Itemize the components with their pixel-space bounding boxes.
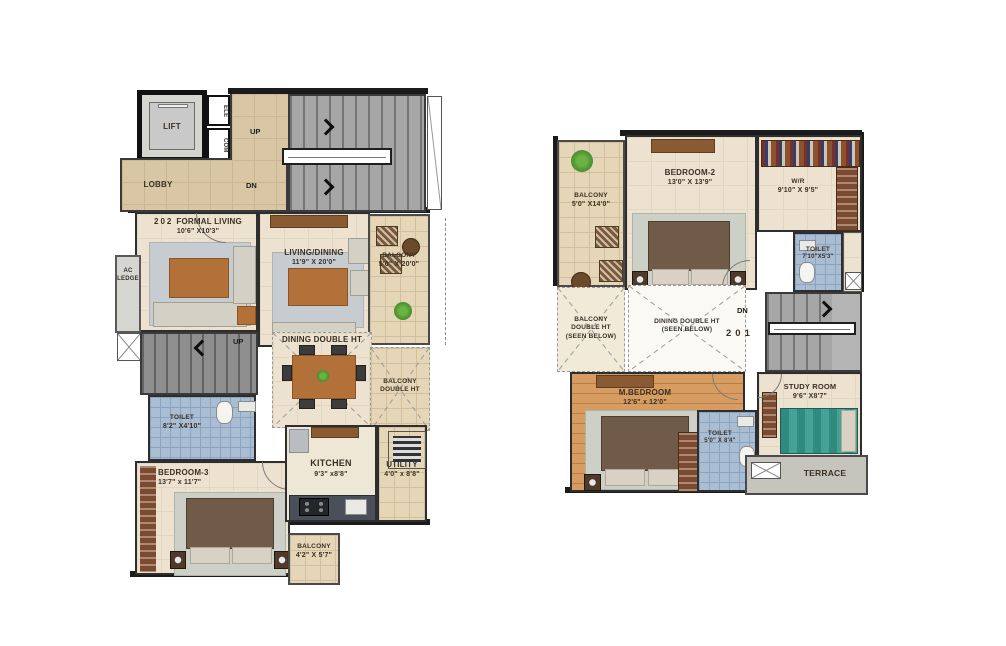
bedroom-2-bed bbox=[648, 221, 730, 271]
balcony-201-plant bbox=[571, 150, 593, 172]
shaft-ele: ELE bbox=[207, 95, 230, 126]
balcony-side-label: BALCONY 5'0" X 20'0" bbox=[368, 252, 430, 270]
dining-chair-5 bbox=[282, 365, 292, 381]
bedroom-2-label: BEDROOM-2 13'0" X 13'9" bbox=[640, 168, 740, 187]
shaft-com: COM bbox=[207, 128, 230, 161]
dining-chair-3 bbox=[299, 399, 315, 409]
balcony-201-label: BALCONY 5'0" X14'0" bbox=[557, 192, 625, 210]
toilet-201-bottom-sink bbox=[737, 416, 754, 427]
lift-label: LIFT bbox=[142, 122, 202, 132]
kitchen-stove bbox=[299, 498, 329, 516]
toilet-201-bottom-label: TOILET 5'0" X 8'4" bbox=[698, 430, 742, 446]
bedroom-3-pillow-2 bbox=[232, 547, 272, 564]
living-dining-dims: 11'9" X 20'0" bbox=[262, 258, 366, 267]
kitchen-dims: 9'3" x8'8" bbox=[287, 470, 375, 479]
study-room-name: STUDY ROOM bbox=[765, 382, 855, 392]
toilet-201-hatch bbox=[845, 272, 862, 290]
inner-stairs-up-label: UP bbox=[233, 337, 243, 346]
kitchen-label: KITCHEN 9'3" x8'8" bbox=[287, 458, 375, 479]
m-bedroom-nightstand-1 bbox=[584, 474, 601, 491]
formal-living-side-sofa bbox=[233, 246, 256, 304]
balcony-double-ht-201-label: BALCONY DOUBLE HT (SEEN BELOW) bbox=[557, 316, 625, 341]
bedroom-3-label: BEDROOM-3 13'7" x 11'7" bbox=[158, 468, 258, 487]
balcony-201-chair-1 bbox=[595, 226, 619, 248]
bedroom-2-name: BEDROOM-2 bbox=[640, 168, 740, 178]
bedroom-3-wardrobe bbox=[140, 466, 156, 572]
bedroom-3-dims: 13'7" x 11'7" bbox=[158, 478, 258, 487]
toilet-202-label: TOILET 8'2" X4'10" bbox=[150, 414, 214, 432]
formal-living-side-table bbox=[237, 306, 256, 325]
balcony-rear-dims: 4'2" X 5'7" bbox=[288, 551, 340, 560]
bedroom-2-dims: 13'0" X 13'9" bbox=[640, 178, 740, 187]
study-room-dims: 9'6" X8'7" bbox=[765, 392, 855, 401]
unit-202-number: 202 bbox=[154, 217, 173, 226]
kitchen-upper-counter bbox=[311, 427, 359, 438]
toilet-201-top-dims: 7'10"X5'3" bbox=[795, 254, 841, 262]
balcony-double-ht-line2: DOUBLE HT bbox=[370, 386, 430, 394]
dining-table-plant bbox=[317, 370, 329, 382]
dining-chair-6 bbox=[356, 365, 366, 381]
bedroom-3-name: BEDROOM-3 bbox=[158, 468, 258, 478]
wr-wardrobe-right bbox=[836, 167, 858, 231]
balcony-side bbox=[368, 214, 430, 345]
formal-living-text: FORMAL LIVING bbox=[176, 217, 242, 226]
toilet-201-top-wc bbox=[799, 262, 815, 283]
bedroom-2-pillow-1 bbox=[652, 269, 689, 285]
balcony-201-name: BALCONY bbox=[557, 192, 625, 200]
balcony-plant bbox=[394, 302, 412, 320]
toilet-202-name: TOILET bbox=[150, 414, 214, 422]
dining-dh-201-line1: DINING DOUBLE HT bbox=[630, 318, 744, 326]
utility-name: UTILITY bbox=[377, 460, 427, 470]
balcony-double-ht-label: BALCONY DOUBLE HT bbox=[370, 378, 430, 395]
stair-rail-line bbox=[288, 157, 386, 158]
balcony-side-dims: 5'0" X 20'0" bbox=[368, 260, 430, 269]
balcony-201-dims: 5'0" X14'0" bbox=[557, 200, 625, 209]
living-dining bbox=[258, 212, 370, 347]
toilet-201-bottom-dims: 5'0" X 8'4" bbox=[698, 438, 742, 446]
dining-chair-2 bbox=[331, 345, 347, 355]
formal-living-coffee-table bbox=[169, 258, 229, 298]
bedroom-3-pillow-1 bbox=[190, 547, 230, 564]
living-dining-label: LIVING/DINING 11'9" X 20'0" bbox=[262, 248, 366, 267]
toilet-202-wc bbox=[216, 401, 233, 424]
dining-chair-4 bbox=[331, 399, 347, 409]
wr-wardrobe-top bbox=[761, 140, 860, 167]
open-edge-dashed bbox=[445, 218, 446, 345]
balcony-double-ht-line1: BALCONY bbox=[370, 378, 430, 386]
balcony-201-chair-2 bbox=[599, 260, 623, 282]
wr-name: W/R bbox=[762, 178, 834, 186]
bedroom-3-nightstand-1 bbox=[170, 551, 186, 569]
balcony-rear-name: BALCONY bbox=[288, 543, 340, 551]
stairs-201-dn-label: DN bbox=[737, 306, 748, 315]
ac-ledge-line2: LEDGE bbox=[115, 276, 141, 284]
balcony-dh-201-line1: BALCONY bbox=[557, 316, 625, 324]
toilet-202-sink bbox=[238, 401, 256, 412]
terrace-label: TERRACE bbox=[790, 468, 860, 479]
m-bedroom-pillow-1 bbox=[605, 469, 645, 486]
terrace-hatch bbox=[751, 462, 781, 479]
living-dining-name: LIVING/DINING bbox=[262, 248, 366, 258]
formal-living-sofa bbox=[153, 302, 247, 327]
m-bedroom-dresser bbox=[596, 375, 654, 388]
m-bedroom-bed bbox=[601, 416, 689, 471]
unit-201-number: 201 bbox=[726, 328, 754, 339]
study-daybed-pillow bbox=[841, 410, 856, 452]
dining-double-ht-label: DINING DOUBLE HT bbox=[274, 335, 370, 345]
balcony-dh-201-line2: DOUBLE HT bbox=[557, 324, 625, 332]
living-dining-console bbox=[270, 215, 348, 228]
stair-rail-202 bbox=[282, 148, 392, 165]
ac-ledge-label: AC LEDGE bbox=[115, 268, 141, 284]
wr-label: W/R 9'10" X 9'5" bbox=[762, 178, 834, 196]
m-bedroom-label: M.BEDROOM 12'6" x 12'0" bbox=[590, 388, 700, 407]
formal-living-label: 202FORMAL LIVING 10'6" X10'3" bbox=[138, 217, 258, 236]
balcony-201 bbox=[557, 140, 625, 287]
stairs-201-rail bbox=[768, 322, 856, 335]
kitchen-sink bbox=[345, 499, 367, 515]
balcony-side-name: BALCONY bbox=[368, 252, 430, 260]
bedroom-2-dresser bbox=[651, 139, 715, 153]
wr-dims: 9'10" X 9'5" bbox=[762, 186, 834, 195]
toilet-201-top-label: TOILET 7'10"X5'3" bbox=[795, 246, 841, 262]
m-bedroom-dims: 12'6" x 12'0" bbox=[590, 398, 700, 407]
toilet-201-bottom-name: TOILET bbox=[698, 430, 742, 438]
utility-label: UTILITY 4'0" x 8'8" bbox=[377, 460, 427, 479]
formal-living-dims: 10'6" X10'3" bbox=[138, 227, 258, 236]
m-bedroom-name: M.BEDROOM bbox=[590, 388, 700, 398]
dining-chair-1 bbox=[299, 345, 315, 355]
balcony-rear-label: BALCONY 4'2" X 5'7" bbox=[288, 543, 340, 561]
utility-dims: 4'0" x 8'8" bbox=[377, 470, 427, 479]
ac-ledge bbox=[115, 255, 141, 333]
stairs-up-label: UP bbox=[250, 127, 260, 136]
kitchen-fridge bbox=[289, 429, 309, 453]
stairs-dn-label: DN bbox=[246, 181, 257, 190]
study-room-label: STUDY ROOM 9'6" X8'7" bbox=[765, 382, 855, 401]
floor-plan-canvas: LIFT ELE COM LOBBY UP DN bbox=[0, 0, 1006, 646]
living-dining-coffee-table bbox=[288, 268, 348, 306]
balcony-dh-201-line3: (SEEN BELOW) bbox=[557, 333, 625, 341]
ac-ledge-hatch bbox=[117, 333, 141, 361]
lobby-label: LOBBY bbox=[128, 180, 188, 190]
lift-room: LIFT bbox=[137, 90, 207, 162]
dining-double-ht bbox=[272, 332, 372, 428]
shaft-com-label: COM bbox=[209, 132, 228, 158]
kitchen-name: KITCHEN bbox=[287, 458, 375, 470]
bedroom-3-bed bbox=[186, 498, 274, 549]
balcony-chair-1 bbox=[376, 226, 398, 246]
ac-ledge-line1: AC bbox=[115, 268, 141, 276]
shaft-ele-label: ELE bbox=[209, 99, 228, 123]
toilet-202-dims: 8'2" X4'10" bbox=[150, 422, 214, 431]
toilet-201-top-name: TOILET bbox=[795, 246, 841, 254]
formal-living-name: 202FORMAL LIVING bbox=[138, 217, 258, 227]
stairs-201-rail-line bbox=[774, 329, 850, 330]
lift-door bbox=[158, 104, 188, 108]
shaft-hatch-right bbox=[427, 96, 442, 210]
